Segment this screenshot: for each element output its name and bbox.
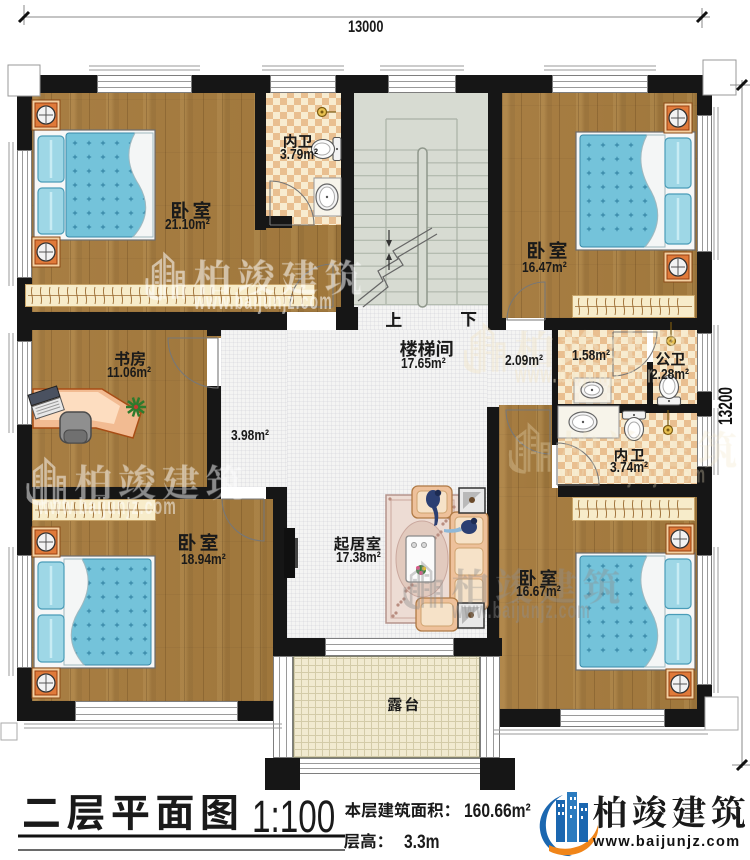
svg-text:13200: 13200 [715,387,737,425]
svg-text:www.baijunjz.com: www.baijunjz.com [193,290,333,315]
svg-text:www.baijunjz.com: www.baijunjz.com [451,599,591,624]
svg-text:www.baijunjz.com: www.baijunjz.com [37,495,177,520]
svg-text:www.baijunjz.com: www.baijunjz.com [592,834,741,850]
